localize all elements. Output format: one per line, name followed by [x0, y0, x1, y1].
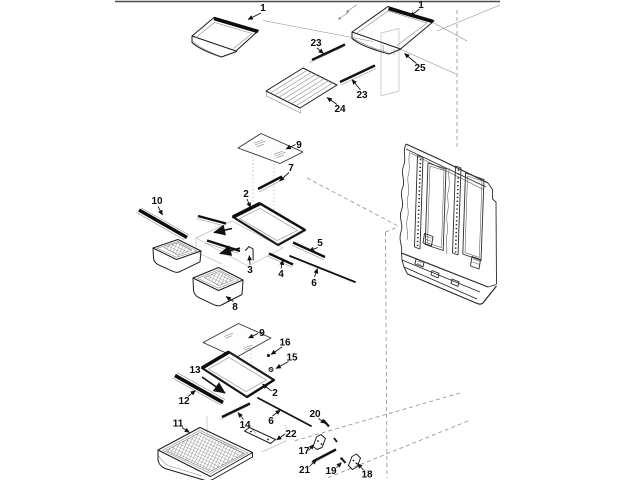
- glass-insert-upper: [238, 134, 303, 164]
- parts-diagram-canvas: 1 1 23 24 23 25 9 7 2 10 3 4 5 6 8 9 16 …: [0, 0, 640, 480]
- crisper-bin-left: [153, 240, 201, 273]
- callout-13: 13: [189, 365, 201, 376]
- shelf-frame-2-middle: [233, 204, 305, 246]
- callout-23-upper: 23: [310, 38, 322, 49]
- rail-7: [258, 177, 283, 193]
- crisper-bin-right: [193, 268, 243, 306]
- callout-15: 15: [286, 353, 298, 364]
- rod-6-middle: [290, 256, 355, 282]
- callout-6-middle: 6: [311, 278, 317, 289]
- rail-14: [220, 404, 250, 420]
- shelf-frame-2-lower: [202, 352, 274, 397]
- callout-14: 14: [239, 420, 251, 431]
- ribbed-insert-24: [266, 68, 337, 113]
- callout-7: 7: [288, 163, 294, 174]
- callout-6-lower: 6: [268, 416, 274, 427]
- callout-25: 25: [414, 63, 426, 74]
- callout-1-right: 1: [418, 0, 424, 11]
- callout-22: 22: [285, 429, 297, 440]
- callout-1-left: 1: [260, 3, 266, 14]
- deli-pan-11: [158, 428, 253, 480]
- callout-8: 8: [232, 302, 238, 313]
- screw-20: [323, 420, 329, 427]
- cabinet-frame: [400, 144, 496, 304]
- callout-2-middle: 2: [243, 189, 249, 200]
- callout-11: 11: [173, 419, 184, 430]
- callout-9-lower: 9: [259, 328, 265, 339]
- rail-10: [137, 208, 190, 240]
- callout-24: 24: [334, 104, 346, 115]
- screw-19: [340, 457, 345, 463]
- screw-17b: [334, 438, 337, 442]
- callout-21: 21: [299, 465, 311, 476]
- shelf-top-left: [192, 18, 259, 58]
- rail-4: [268, 254, 294, 268]
- callout-9-upper: 9: [296, 140, 302, 151]
- shelf-top-right: [352, 7, 434, 56]
- callout-17: 17: [298, 446, 310, 457]
- callout-4: 4: [278, 269, 284, 280]
- callout-12: 12: [178, 396, 190, 407]
- callout-23-lower: 23: [356, 90, 368, 101]
- screw-15: [269, 368, 273, 372]
- bracket-18: [348, 454, 361, 471]
- rod-6-lower: [258, 398, 311, 426]
- fastener-16: [267, 354, 270, 357]
- trim-rail-23-lower: [340, 66, 376, 86]
- callout-20: 20: [309, 409, 321, 420]
- callout-2-lower: 2: [272, 388, 278, 399]
- callout-18: 18: [361, 470, 373, 480]
- callout-10: 10: [151, 196, 163, 207]
- bracket-17: [313, 435, 326, 450]
- callout-3: 3: [247, 265, 253, 276]
- callout-19: 19: [325, 466, 337, 477]
- callout-16: 16: [279, 338, 291, 349]
- callout-5: 5: [317, 238, 323, 249]
- exploded-parts-diagram: 1 1 23 24 23 25 9 7 2 10 3 4 5 6 8 9 16 …: [0, 0, 640, 480]
